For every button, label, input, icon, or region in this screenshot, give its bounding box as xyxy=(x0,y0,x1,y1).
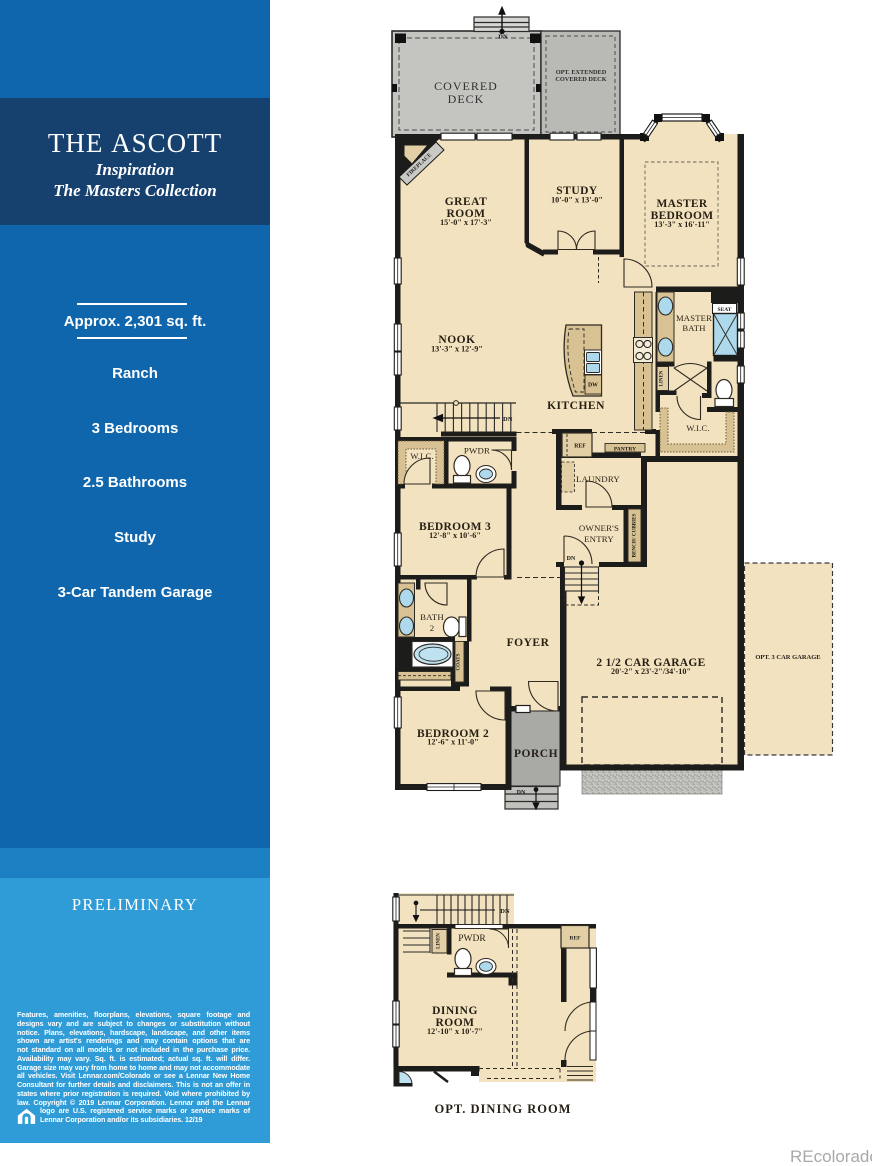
svg-text:ENTRY: ENTRY xyxy=(584,534,614,544)
svg-text:FOYER: FOYER xyxy=(507,637,550,649)
svg-text:W.I.C.: W.I.C. xyxy=(410,451,433,461)
svg-text:13'-3" x 12'-9": 13'-3" x 12'-9" xyxy=(431,345,483,354)
svg-text:OPT. 3 CAR GARAGE: OPT. 3 CAR GARAGE xyxy=(755,654,820,661)
svg-text:GREAT: GREAT xyxy=(445,196,488,208)
svg-text:OWNER'S: OWNER'S xyxy=(579,523,619,533)
svg-text:DN: DN xyxy=(503,416,513,423)
svg-text:12'-8" x 10'-6": 12'-8" x 10'-6" xyxy=(429,531,481,540)
svg-text:LAUNDRY: LAUNDRY xyxy=(576,474,620,484)
svg-text:12'-6" x 11'-0": 12'-6" x 11'-0" xyxy=(427,738,478,747)
svg-text:LINEN: LINEN xyxy=(437,933,442,949)
svg-text:BATH: BATH xyxy=(420,612,444,622)
svg-text:SEAT: SEAT xyxy=(718,307,732,313)
svg-text:DN: DN xyxy=(500,908,510,915)
svg-text:PORCH: PORCH xyxy=(514,748,558,760)
svg-text:15'-0" x 17'-3": 15'-0" x 17'-3" xyxy=(440,218,492,227)
svg-text:DN: DN xyxy=(517,790,526,796)
svg-text:PWDR: PWDR xyxy=(464,446,490,456)
svg-text:DINING: DINING xyxy=(432,1005,478,1017)
svg-text:COATS: COATS xyxy=(457,653,462,670)
svg-text:12'-10" x 10'-7": 12'-10" x 10'-7" xyxy=(427,1027,483,1036)
svg-text:OPT. EXTENDED: OPT. EXTENDED xyxy=(556,69,607,76)
svg-text:REF: REF xyxy=(570,936,582,942)
svg-text:MASTER: MASTER xyxy=(676,313,712,323)
svg-text:OPT. DINING ROOM: OPT. DINING ROOM xyxy=(435,1102,572,1116)
svg-text:REF: REF xyxy=(574,444,586,450)
svg-text:DN: DN xyxy=(498,34,508,41)
svg-text:PANTRY: PANTRY xyxy=(614,447,636,453)
svg-text:PWDR: PWDR xyxy=(458,934,486,944)
svg-text:DW: DW xyxy=(588,383,598,389)
svg-text:20'-2" x 23'-2"/34'-10": 20'-2" x 23'-2"/34'-10" xyxy=(611,667,691,676)
svg-text:DECK: DECK xyxy=(448,92,485,106)
svg-text:BENCH/ CUBBIES: BENCH/ CUBBIES xyxy=(632,513,638,557)
svg-text:BATH: BATH xyxy=(682,323,705,333)
svg-text:COVERED: COVERED xyxy=(434,79,498,93)
svg-text:LINEN: LINEN xyxy=(660,370,665,386)
svg-text:KITCHEN: KITCHEN xyxy=(547,400,605,412)
svg-text:W.I.C.: W.I.C. xyxy=(686,423,709,433)
svg-text:COVERED DECK: COVERED DECK xyxy=(555,76,606,83)
svg-text:MASTER: MASTER xyxy=(656,198,707,210)
svg-text:2: 2 xyxy=(430,623,435,633)
svg-text:DN: DN xyxy=(567,556,576,562)
svg-text:10'-0" x 13'-0": 10'-0" x 13'-0" xyxy=(551,196,603,205)
svg-text:13'-3" x 16'-11": 13'-3" x 16'-11" xyxy=(654,220,710,229)
